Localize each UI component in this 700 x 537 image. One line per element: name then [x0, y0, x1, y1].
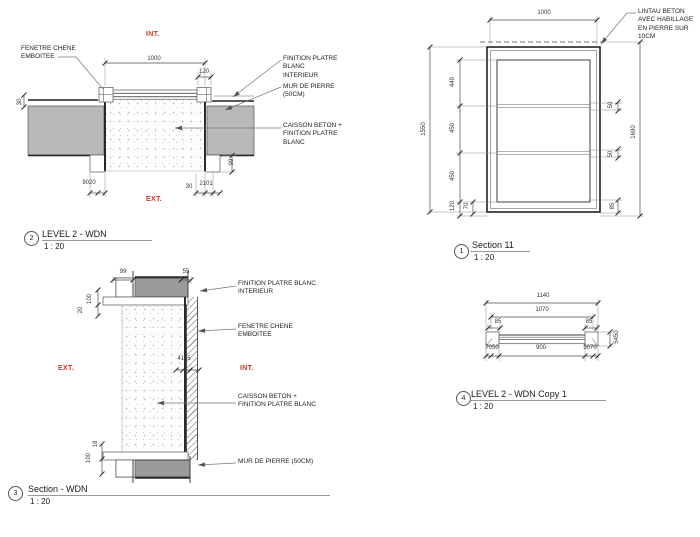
- sect-callout-mur: MUR DE PIERRE (50CM): [238, 458, 313, 466]
- sect-dim-l1: 100: [87, 284, 93, 314]
- pc-dim-b2: 900: [526, 345, 556, 351]
- pc-dim-w2: 1070: [527, 307, 557, 313]
- elev-dim-p4: 120: [450, 191, 456, 221]
- section-core: [122, 297, 185, 460]
- section-dimension-lines: [96, 276, 200, 474]
- pc-dim-b1: 7050: [477, 345, 507, 351]
- elev-view-number: 1: [454, 244, 469, 259]
- plan-view-title: LEVEL 2 - WDN: [42, 229, 107, 239]
- sect-view-number: 3: [8, 486, 23, 501]
- sect-view-title: Section - WDN: [28, 484, 88, 494]
- plan-view-scale: 1 : 20: [44, 242, 64, 251]
- view-plan-copy: 1140 1070 85 85 5450 7050 900 5070 4 LEV…: [400, 280, 700, 537]
- plan-title-underline: [42, 240, 152, 241]
- plan-callout-mur: MUR DE PIERRE (50CM): [283, 83, 350, 100]
- sect-dim-t2: 55: [176, 269, 196, 275]
- pc-dim-b3: 5070: [575, 345, 605, 351]
- view-plan-level2-wdn: INT. FENETRE CHENE EMBOITEE 1000 120 30 …: [0, 0, 350, 260]
- elev-callout-lintau: LINTAU BETON AVEC HABILLAGE EN PIERRE SU…: [638, 8, 693, 42]
- view-section-11: 1000 LINTAU BETON AVEC HABILLAGE EN PIER…: [400, 0, 700, 260]
- plan-dim-bottom-left: 9020: [77, 180, 101, 186]
- sect-title-underline: [28, 495, 330, 496]
- plan-dim-notch: 99: [229, 147, 235, 177]
- elev-dim-right-total: 1690: [631, 117, 637, 147]
- sect-dim-l2: 20: [78, 295, 84, 325]
- elev-title-underline: [470, 251, 530, 252]
- plancopy-sill-assembly: [486, 332, 598, 346]
- plan-ext-label: EXT.: [146, 196, 162, 203]
- view-section-wdn: 99 55 100 20 4165 18 100 EXT. INT. FINIT…: [0, 260, 350, 537]
- pc-view-number: 4: [456, 391, 471, 406]
- sect-callout-finition: FINITION PLATRE BLANC INTERIEUR: [238, 280, 316, 297]
- sect-int-label: INT.: [240, 365, 254, 372]
- elev-dim-top: 1000: [529, 10, 559, 16]
- plan-window-frame: [99, 88, 211, 103]
- plan-jambs: [105, 97, 205, 171]
- section-leader-lines: [157, 286, 236, 465]
- plan-view-number: 2: [24, 231, 39, 246]
- plan-walls: [28, 96, 254, 172]
- plan-callout-caisson: CAISSON BETON + FINITION PLATRE BLANC: [283, 122, 350, 147]
- elev-dim-r3: 85: [610, 191, 616, 221]
- pc-dim-w1: 1140: [528, 293, 558, 299]
- elev-dim-p1: 449: [450, 67, 456, 97]
- elev-dim-r1: 50: [608, 90, 614, 120]
- elevation-leader-lines: [601, 13, 636, 44]
- plan-dim-reveal: 120: [194, 69, 214, 75]
- pc-title-underline: [471, 400, 606, 401]
- plan-dim-30: 30: [17, 87, 23, 117]
- elevation-frame: [480, 42, 606, 212]
- elev-dim-p2: 450: [450, 113, 456, 143]
- plan-callout-finition: FINITION PLATRE BLANC INTERIEUR: [283, 55, 350, 80]
- elev-view-title: Section 11: [472, 240, 514, 250]
- elev-dim-p3: 450: [450, 161, 456, 191]
- section-top-wall: [103, 271, 188, 305]
- sect-dim-b2: 100: [86, 443, 92, 473]
- pc-view-scale: 1 : 20: [473, 402, 493, 411]
- sect-callout-caisson: CAISSON BETON + FINITION PLATRE BLANC: [238, 393, 316, 410]
- plan-dim-bottom-right: 2101: [194, 181, 218, 187]
- elev-dim-left-total: 1550: [421, 114, 427, 144]
- pc-dim-e-right: 85: [580, 319, 598, 325]
- pc-dim-e-left: 85: [489, 319, 507, 325]
- sect-dim-mid: 4165: [172, 356, 196, 362]
- sect-dim-b1: 18: [93, 429, 99, 459]
- plan-dim-opening: 1000: [139, 56, 169, 62]
- section-bottom-wall: [103, 452, 190, 483]
- pc-dim-side: 5450: [614, 322, 620, 352]
- pc-view-title: LEVEL 2 - WDN Copy 1: [471, 389, 567, 399]
- drawing-sheet: INT. FENETRE CHENE EMBOITEE 1000 120 30 …: [0, 0, 700, 537]
- sect-callout-fenetre: FENETRE CHENE EMBOITEE: [238, 323, 293, 340]
- sect-view-scale: 1 : 20: [30, 497, 50, 506]
- sect-ext-label: EXT.: [58, 365, 74, 372]
- elev-dim-p5: 70: [464, 191, 470, 221]
- plancopy-linework: [400, 280, 700, 440]
- plan-int-label: INT.: [146, 31, 160, 38]
- sect-dim-t1: 99: [113, 269, 133, 275]
- elev-view-scale: 1 : 20: [474, 253, 494, 262]
- plan-callout-fenetre: FENETRE CHENE EMBOITEE: [21, 45, 76, 62]
- elev-dim-r2: 50: [608, 139, 614, 169]
